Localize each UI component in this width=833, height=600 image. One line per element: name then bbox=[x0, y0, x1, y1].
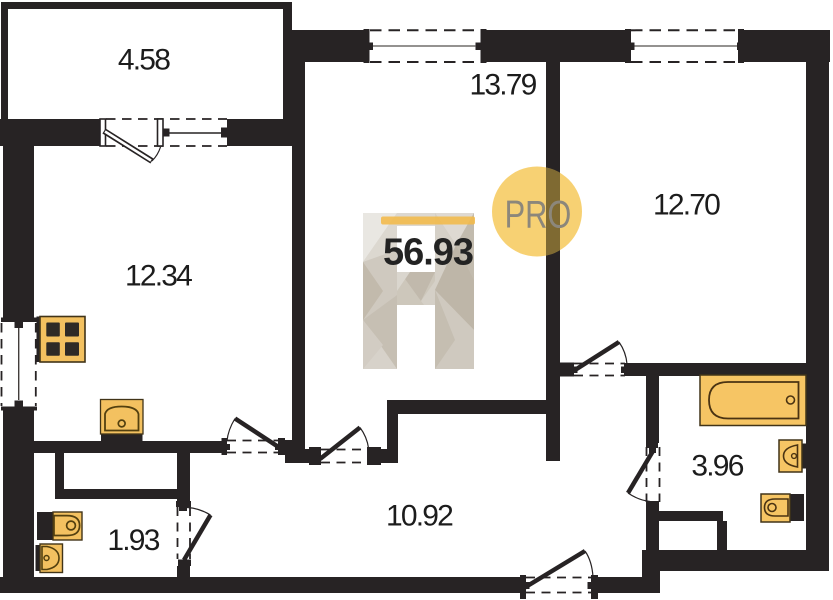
svg-text:10.92: 10.92 bbox=[386, 500, 453, 533]
svg-text:12.34: 12.34 bbox=[125, 260, 192, 293]
svg-text:1.93: 1.93 bbox=[107, 524, 159, 557]
svg-text:13.79: 13.79 bbox=[469, 69, 536, 102]
svg-text:3.96: 3.96 bbox=[691, 450, 743, 483]
svg-text:PRO: PRO bbox=[505, 193, 572, 236]
svg-text:56.93: 56.93 bbox=[383, 232, 473, 274]
svg-text:12.70: 12.70 bbox=[653, 189, 720, 222]
svg-text:4.58: 4.58 bbox=[118, 44, 170, 77]
